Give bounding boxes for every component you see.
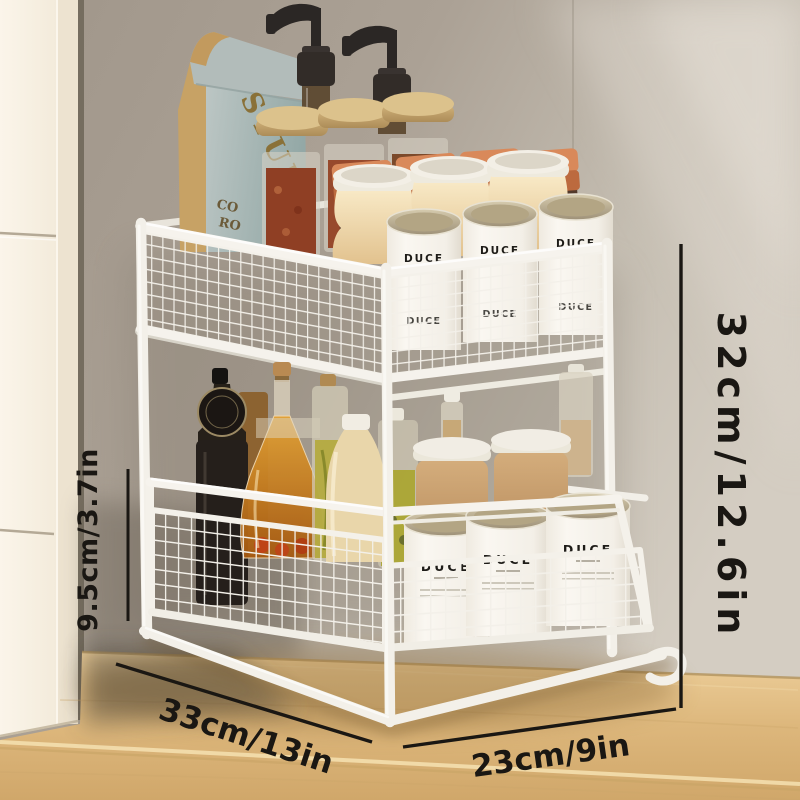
cork-top (273, 362, 291, 376)
bottle-round-label (198, 388, 246, 436)
bamboo-lid-top (382, 92, 454, 116)
dimension-label-total-height: 32cm/12.6in (709, 312, 753, 641)
can-top-inner (547, 198, 605, 217)
can-top-inner (471, 205, 529, 224)
spice-jar-bamboo-1 (256, 106, 328, 257)
cork-top (320, 374, 336, 387)
bamboo-lid-top (318, 98, 390, 122)
scene: STUMP CO RO (0, 0, 800, 800)
cream-jar-lid-inner (495, 153, 561, 169)
cabinet-panel (0, 0, 84, 737)
white-cap (444, 390, 460, 402)
glass-headspace (256, 418, 320, 438)
cream-jar-lid-inner (418, 159, 484, 175)
pump-nozzle (266, 14, 276, 34)
pump-collar (297, 52, 335, 86)
bottle-neck-glass (274, 380, 290, 418)
dimension-label-tier-height: 9.5cm/3.7in (73, 448, 104, 632)
jar-lid (413, 437, 491, 459)
cream-jar-lid-inner (341, 167, 407, 183)
white-cap (342, 414, 370, 430)
pump-nozzle (342, 36, 352, 56)
product-photo: STUMP CO RO (0, 0, 800, 800)
bottle-cap (212, 368, 228, 384)
bamboo-lid-top (256, 106, 328, 130)
can-top-inner (395, 213, 453, 232)
jar-lid (491, 429, 571, 451)
jar-contents (266, 168, 316, 254)
